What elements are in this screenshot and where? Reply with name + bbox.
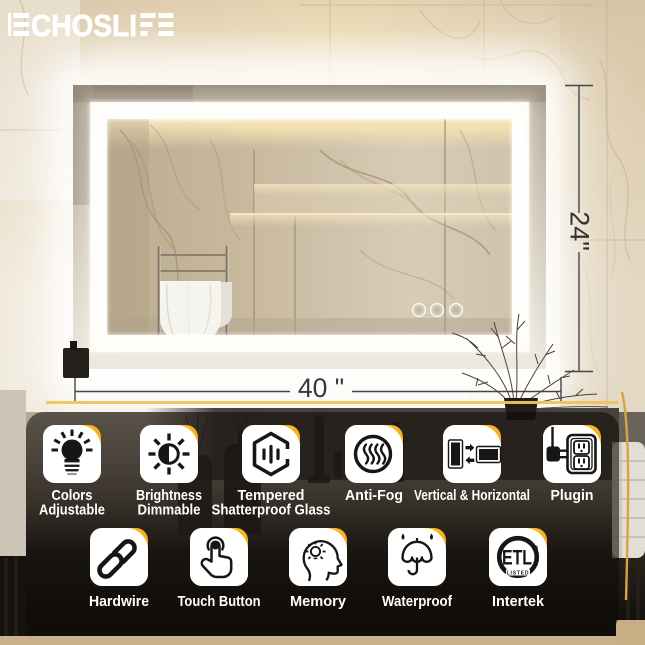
svg-text:Hardwire: Hardwire — [89, 593, 149, 610]
svg-text:Vertical & Horizontal: Vertical & Horizontal — [414, 487, 530, 504]
svg-text:Intertek: Intertek — [492, 593, 545, 610]
svg-text:Adjustable: Adjustable — [39, 502, 105, 519]
svg-text:Anti-Fog: Anti-Fog — [345, 487, 403, 504]
svg-text:Touch Button: Touch Button — [178, 593, 261, 610]
svg-text:Plugin: Plugin — [551, 487, 594, 504]
svg-text:Shatterproof Glass: Shatterproof Glass — [212, 502, 331, 519]
svg-text:Memory: Memory — [290, 593, 347, 610]
svg-text:ETL: ETL — [502, 547, 532, 570]
svg-text:Dimmable: Dimmable — [138, 502, 201, 519]
svg-text:Waterproof: Waterproof — [382, 593, 453, 610]
svg-text:LISTED: LISTED — [507, 571, 530, 577]
